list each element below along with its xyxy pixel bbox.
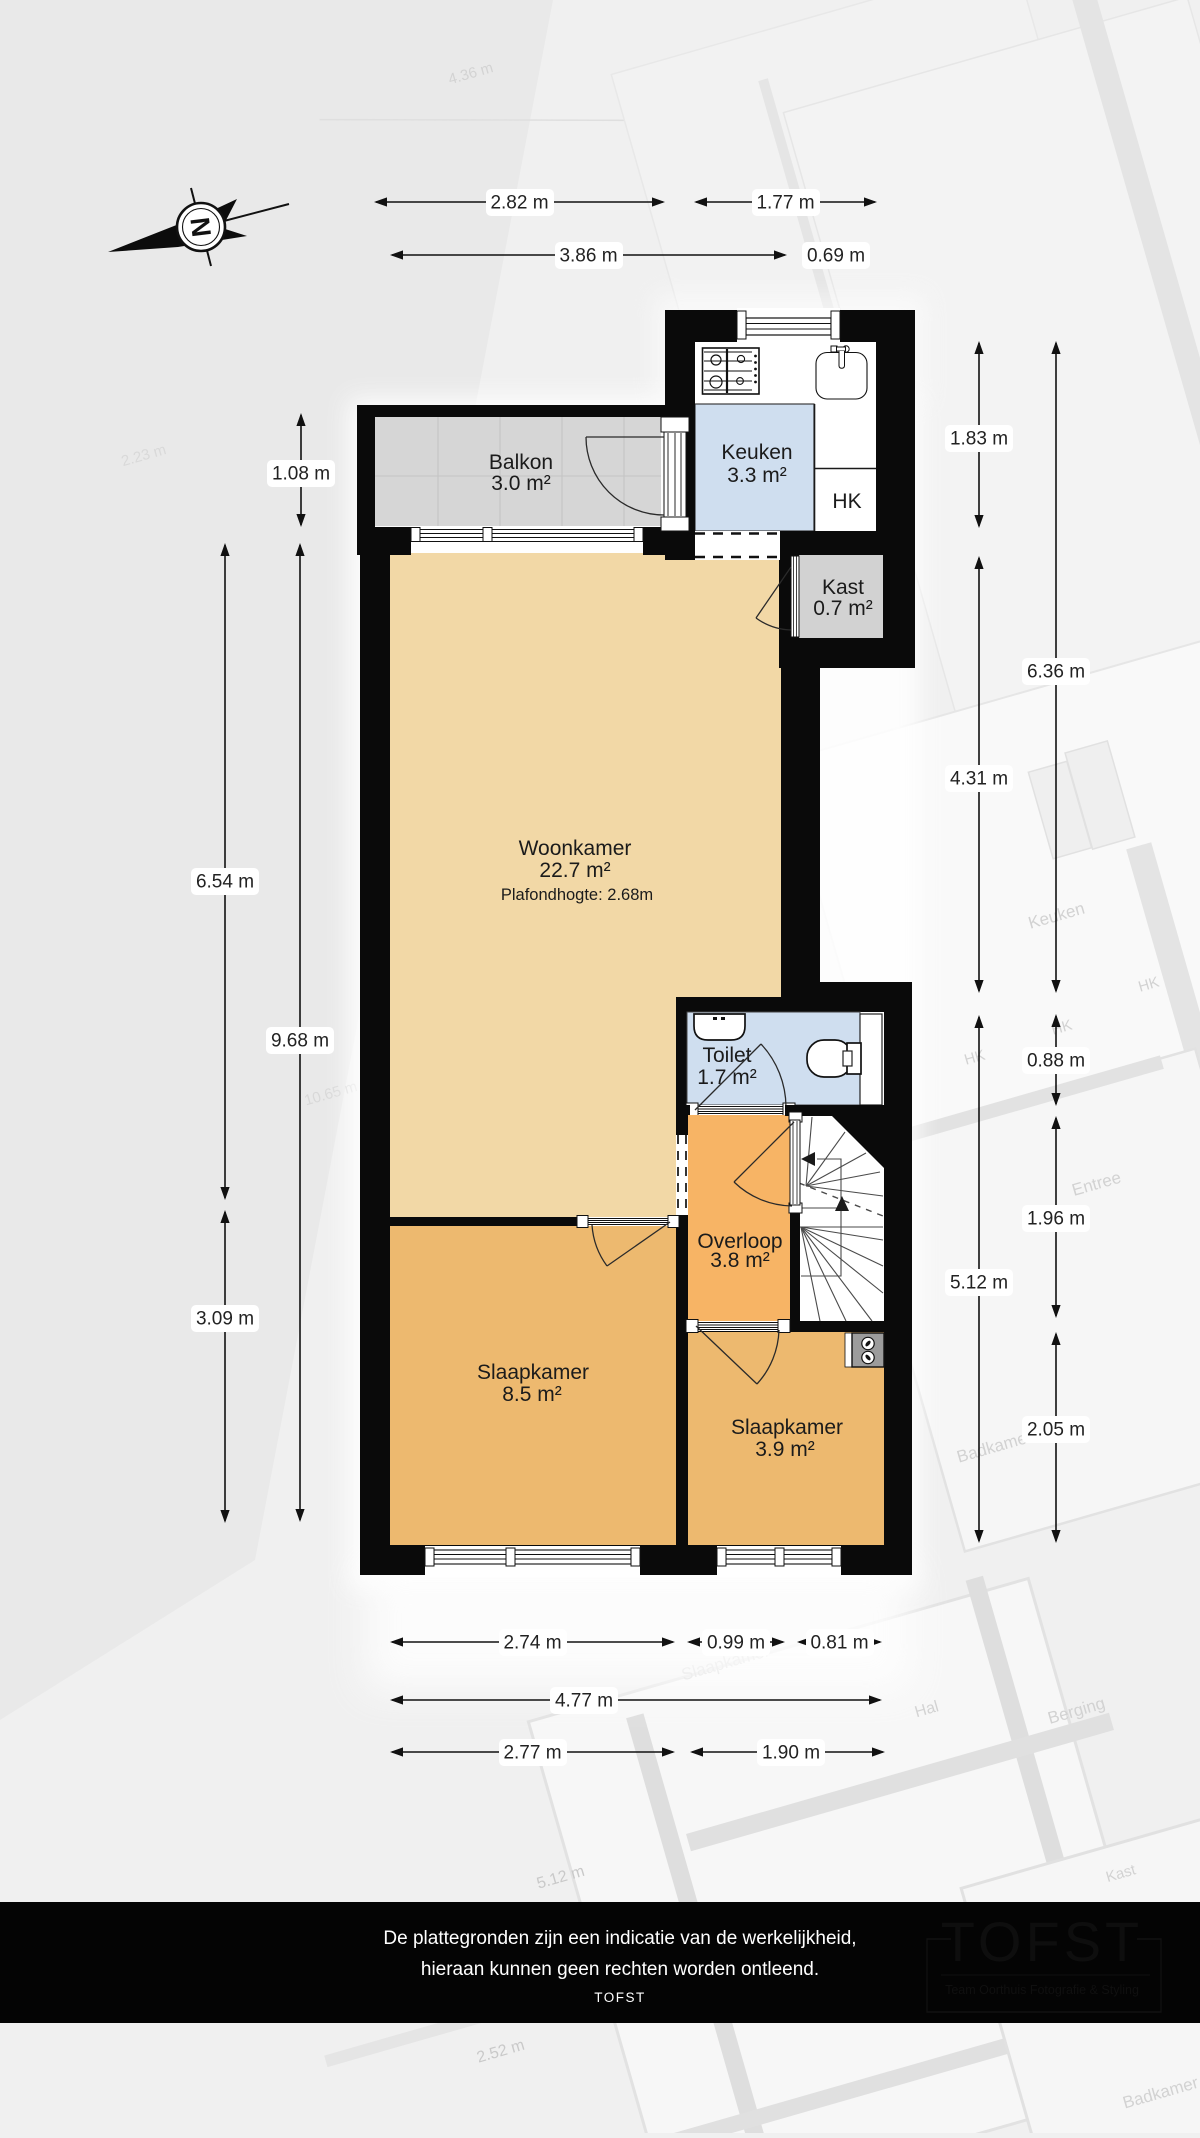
svg-text:1.90 m: 1.90 m bbox=[762, 1743, 820, 1764]
svg-text:Slaapkamer: Slaapkamer bbox=[731, 1416, 843, 1439]
svg-text:5.12 m: 5.12 m bbox=[950, 1273, 1008, 1294]
svg-text:hieraan kunnen geen rechten wo: hieraan kunnen geen rechten worden ontle… bbox=[421, 1959, 819, 1980]
svg-text:1.83 m: 1.83 m bbox=[950, 429, 1008, 450]
svg-text:0.7 m²: 0.7 m² bbox=[813, 597, 873, 620]
svg-text:22.7 m²: 22.7 m² bbox=[539, 859, 610, 882]
svg-text:1.96 m: 1.96 m bbox=[1027, 1209, 1085, 1230]
svg-text:Plafondhogte: 2.68m: Plafondhogte: 2.68m bbox=[501, 886, 653, 904]
svg-text:9.68 m: 9.68 m bbox=[271, 1031, 329, 1052]
svg-text:1.77 m: 1.77 m bbox=[756, 193, 814, 214]
svg-text:3.0 m²: 3.0 m² bbox=[491, 472, 551, 495]
svg-text:Balkon: Balkon bbox=[489, 451, 553, 474]
svg-text:4.77 m: 4.77 m bbox=[555, 1691, 613, 1712]
svg-text:Toilet: Toilet bbox=[702, 1044, 751, 1067]
svg-text:2.05 m: 2.05 m bbox=[1027, 1420, 1085, 1441]
svg-text:3.09 m: 3.09 m bbox=[196, 1309, 254, 1330]
svg-text:Keuken: Keuken bbox=[721, 441, 792, 464]
svg-text:2.77 m: 2.77 m bbox=[503, 1743, 561, 1764]
svg-text:TOFST: TOFST bbox=[941, 1910, 1144, 1973]
svg-text:0.69 m: 0.69 m bbox=[807, 246, 865, 267]
svg-text:0.88 m: 0.88 m bbox=[1027, 1051, 1085, 1072]
svg-text:3.86 m: 3.86 m bbox=[559, 246, 617, 267]
svg-text:Woonkamer: Woonkamer bbox=[519, 837, 632, 860]
svg-text:3.3 m²: 3.3 m² bbox=[727, 464, 787, 487]
svg-text:TOFST: TOFST bbox=[594, 1990, 646, 2005]
svg-text:6.36 m: 6.36 m bbox=[1027, 662, 1085, 683]
svg-text:2.74 m: 2.74 m bbox=[503, 1633, 561, 1654]
svg-text:HK: HK bbox=[832, 490, 861, 513]
svg-text:1.08 m: 1.08 m bbox=[272, 464, 330, 485]
svg-text:De plattegronden zijn een indi: De plattegronden zijn een indicatie van … bbox=[383, 1928, 856, 1949]
svg-text:Slaapkamer: Slaapkamer bbox=[477, 1361, 589, 1384]
svg-text:3.9 m²: 3.9 m² bbox=[755, 1438, 815, 1461]
svg-text:4.31 m: 4.31 m bbox=[950, 769, 1008, 790]
svg-text:0.99 m: 0.99 m bbox=[707, 1633, 765, 1654]
svg-text:0.81 m: 0.81 m bbox=[810, 1633, 868, 1654]
svg-text:3.8 m²: 3.8 m² bbox=[710, 1249, 770, 1272]
svg-text:8.5 m²: 8.5 m² bbox=[502, 1383, 562, 1406]
svg-text:Team Oorthuis Fotografie & Sty: Team Oorthuis Fotografie & Styling bbox=[945, 1983, 1139, 1997]
svg-text:6.54 m: 6.54 m bbox=[196, 872, 254, 893]
svg-text:2.82 m: 2.82 m bbox=[490, 193, 548, 214]
svg-text:N: N bbox=[185, 215, 217, 238]
svg-text:Kast: Kast bbox=[822, 576, 864, 599]
